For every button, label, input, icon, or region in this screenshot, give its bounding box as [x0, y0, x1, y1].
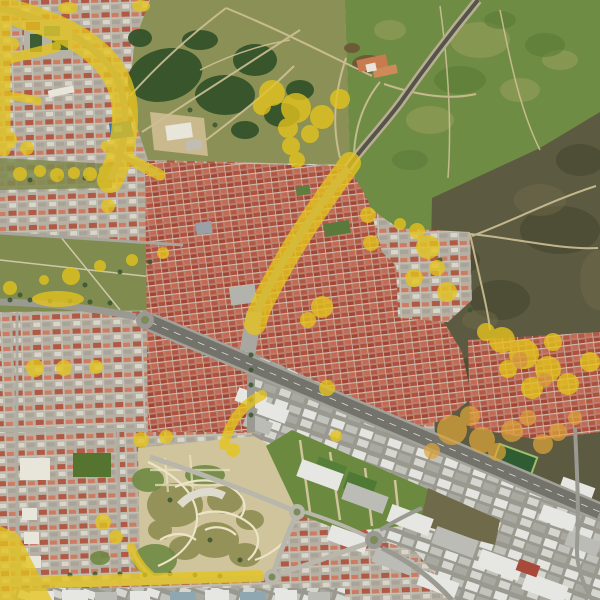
tree-dot [83, 283, 88, 288]
highlight-blob-orange [549, 423, 567, 441]
highlight-blob [58, 2, 78, 14]
supermarket-roof [20, 458, 50, 480]
park-cell [236, 510, 264, 530]
tree-dot [163, 88, 168, 93]
highlight-blob [157, 247, 169, 259]
grid-street [118, 432, 120, 586]
park-cell [132, 468, 164, 492]
highlight-blob [330, 89, 350, 109]
tree-dot [148, 260, 153, 265]
field-mottle [525, 33, 565, 57]
highlight-blob [580, 352, 600, 372]
highlight-blob [300, 312, 316, 328]
warehouse-roof [62, 590, 88, 600]
highlight-blob [416, 235, 440, 259]
tree-dot [188, 108, 193, 113]
highlight-blob [330, 430, 342, 442]
highlight-blob [319, 380, 335, 396]
highlight-blob [126, 254, 138, 266]
satellite-map-view[interactable] [0, 0, 600, 600]
apartment-block-roof [22, 508, 37, 520]
highlight-blob-orange [424, 443, 440, 459]
highlight-blob [5, 37, 19, 51]
highlight-blob [50, 168, 64, 182]
apartment-block-roof [24, 532, 39, 544]
tree-dot [238, 128, 243, 133]
highlight-blob [34, 165, 46, 177]
highlight-blob-orange [533, 434, 553, 454]
highlight-blob [62, 267, 80, 285]
field-mottle [406, 106, 454, 134]
blue-warehouse-roof [240, 592, 266, 600]
field-mottle [434, 66, 486, 94]
highlight-blob [13, 167, 27, 181]
highlight-blob [89, 360, 103, 374]
satellite-map [0, 0, 600, 600]
highlight-blob [394, 218, 406, 230]
highlight-blob-orange [512, 352, 528, 368]
highlight-blob [437, 282, 457, 302]
roundabout-island [294, 509, 301, 516]
tree-dot [168, 498, 173, 503]
highlight-blob [20, 141, 34, 155]
highlight-blob [301, 125, 319, 143]
highlight-blob [557, 373, 579, 395]
highlight-blob-orange [538, 373, 552, 387]
highlight-blob [26, 359, 44, 377]
sand-lot [150, 112, 208, 156]
highlight-blob [56, 360, 72, 376]
highlight-blob [405, 269, 423, 287]
tree-dot [28, 178, 33, 183]
tree-dot [238, 558, 243, 563]
highlight-blob [272, 261, 290, 279]
highlight-blob-orange [488, 443, 506, 461]
highlight-blob [39, 275, 49, 285]
tree-dot [468, 308, 473, 313]
highlight-blob [429, 260, 445, 276]
roundabout-island [141, 316, 149, 324]
highlight-blob-orange [460, 406, 480, 426]
field-mottle [392, 150, 428, 170]
highlight-blob [363, 235, 379, 251]
highlight-blob [311, 296, 333, 318]
warehouse-roof [95, 592, 117, 600]
tree-dot [249, 353, 254, 358]
tree-dot [249, 368, 254, 373]
highlight-blob [109, 530, 123, 544]
highlight-blob [360, 207, 376, 223]
highlight-blob [95, 514, 111, 530]
highlight-blob-orange [501, 420, 523, 442]
highlight-blob [68, 167, 80, 179]
warehouse-roof [308, 592, 330, 600]
warehouse-roof [130, 591, 150, 600]
highlight-blob [133, 432, 149, 448]
highlight-blob [226, 443, 240, 457]
tree-dot [213, 123, 218, 128]
highlight-blob [3, 281, 17, 295]
highlight-blob [477, 323, 495, 341]
forest-clump [128, 29, 152, 47]
highlight-blob [544, 333, 562, 351]
highlight-band [22, 576, 258, 583]
tree-dot [249, 413, 254, 418]
tree-dot [118, 270, 123, 275]
highlight-blob [132, 0, 150, 12]
highlight-blob [159, 430, 173, 444]
bottom-industrial-strip [14, 588, 345, 600]
highlight-blob [101, 199, 115, 213]
highlight-blob [289, 152, 305, 168]
highlight-blob [83, 167, 97, 181]
park-cell [90, 551, 110, 565]
brown-trees [344, 43, 360, 53]
forest-clump [231, 121, 259, 139]
highlight-blob-orange [520, 410, 536, 426]
roundabout-island [370, 536, 378, 544]
tree-dot [8, 298, 13, 303]
vacant-green-lot [73, 453, 111, 477]
tree-dot [208, 538, 213, 543]
highlight-blob [32, 291, 84, 307]
roundabout-island [269, 574, 276, 581]
tree-dot [249, 383, 254, 388]
highlight-blob [94, 260, 106, 272]
park-cell [148, 520, 172, 540]
blue-warehouse-roof [170, 592, 196, 600]
highlight-blob [278, 118, 298, 138]
highlight-blob [409, 223, 425, 239]
tree-dot [108, 301, 113, 306]
highlight-blob [253, 97, 271, 115]
field-mottle [374, 20, 406, 40]
warehouse-roof [205, 590, 229, 600]
highlight-blob [310, 105, 334, 129]
highlight-blob-orange [568, 411, 582, 425]
warehouse-roof [275, 590, 297, 600]
highlight-blob [99, 165, 111, 177]
tree-dot [18, 293, 23, 298]
tree-dot [28, 298, 33, 303]
public-building-roof [195, 221, 213, 235]
tree-dot [88, 300, 93, 305]
